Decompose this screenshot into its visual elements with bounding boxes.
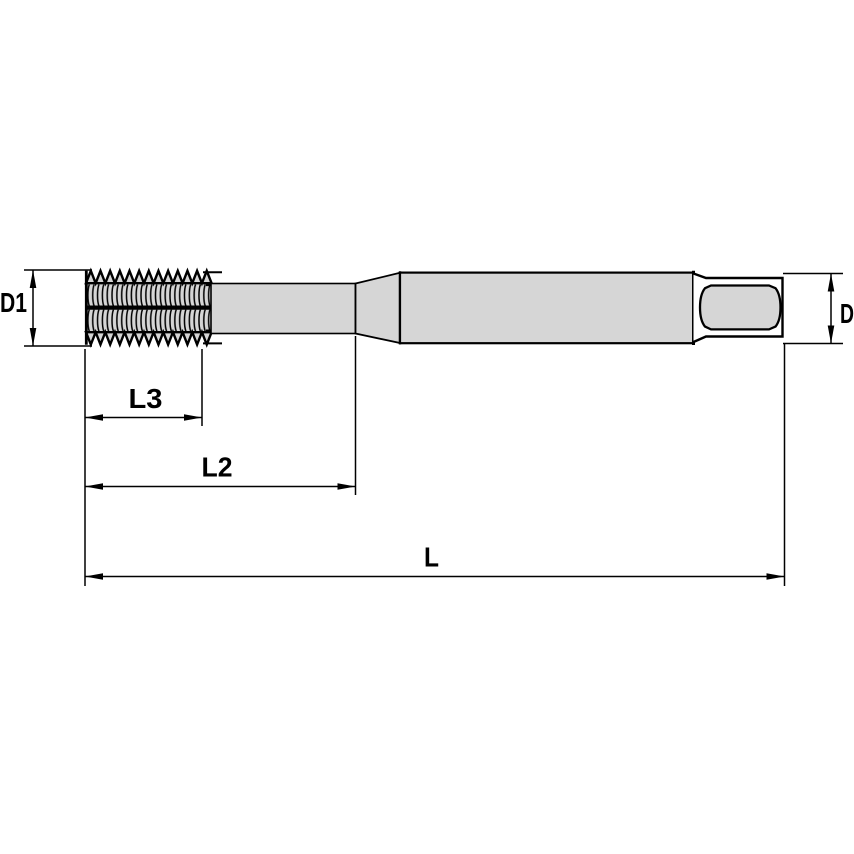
taper-section <box>356 271 401 344</box>
shank-body <box>400 273 694 344</box>
background <box>0 0 854 854</box>
shank-section <box>400 271 694 345</box>
thread-flank-texture-lower <box>87 310 212 332</box>
dimension-d1-label: D1 <box>0 287 27 318</box>
drawing-canvas: D1 D L3 L2 L <box>0 0 854 854</box>
dimension-l-label: L <box>424 542 439 573</box>
neck-body <box>211 284 356 334</box>
dimension-d-label: D <box>840 298 854 329</box>
dimension-l3-label: L3 <box>129 383 163 414</box>
tap-technical-drawing: D1 D L3 L2 L <box>0 0 854 854</box>
square-drive-flat <box>700 286 781 330</box>
taper-body <box>356 273 401 343</box>
square-drive-end <box>694 274 783 343</box>
dimension-l2-label: L2 <box>202 452 233 483</box>
neck-section <box>211 284 356 334</box>
thread-flank-texture-upper <box>87 285 212 307</box>
